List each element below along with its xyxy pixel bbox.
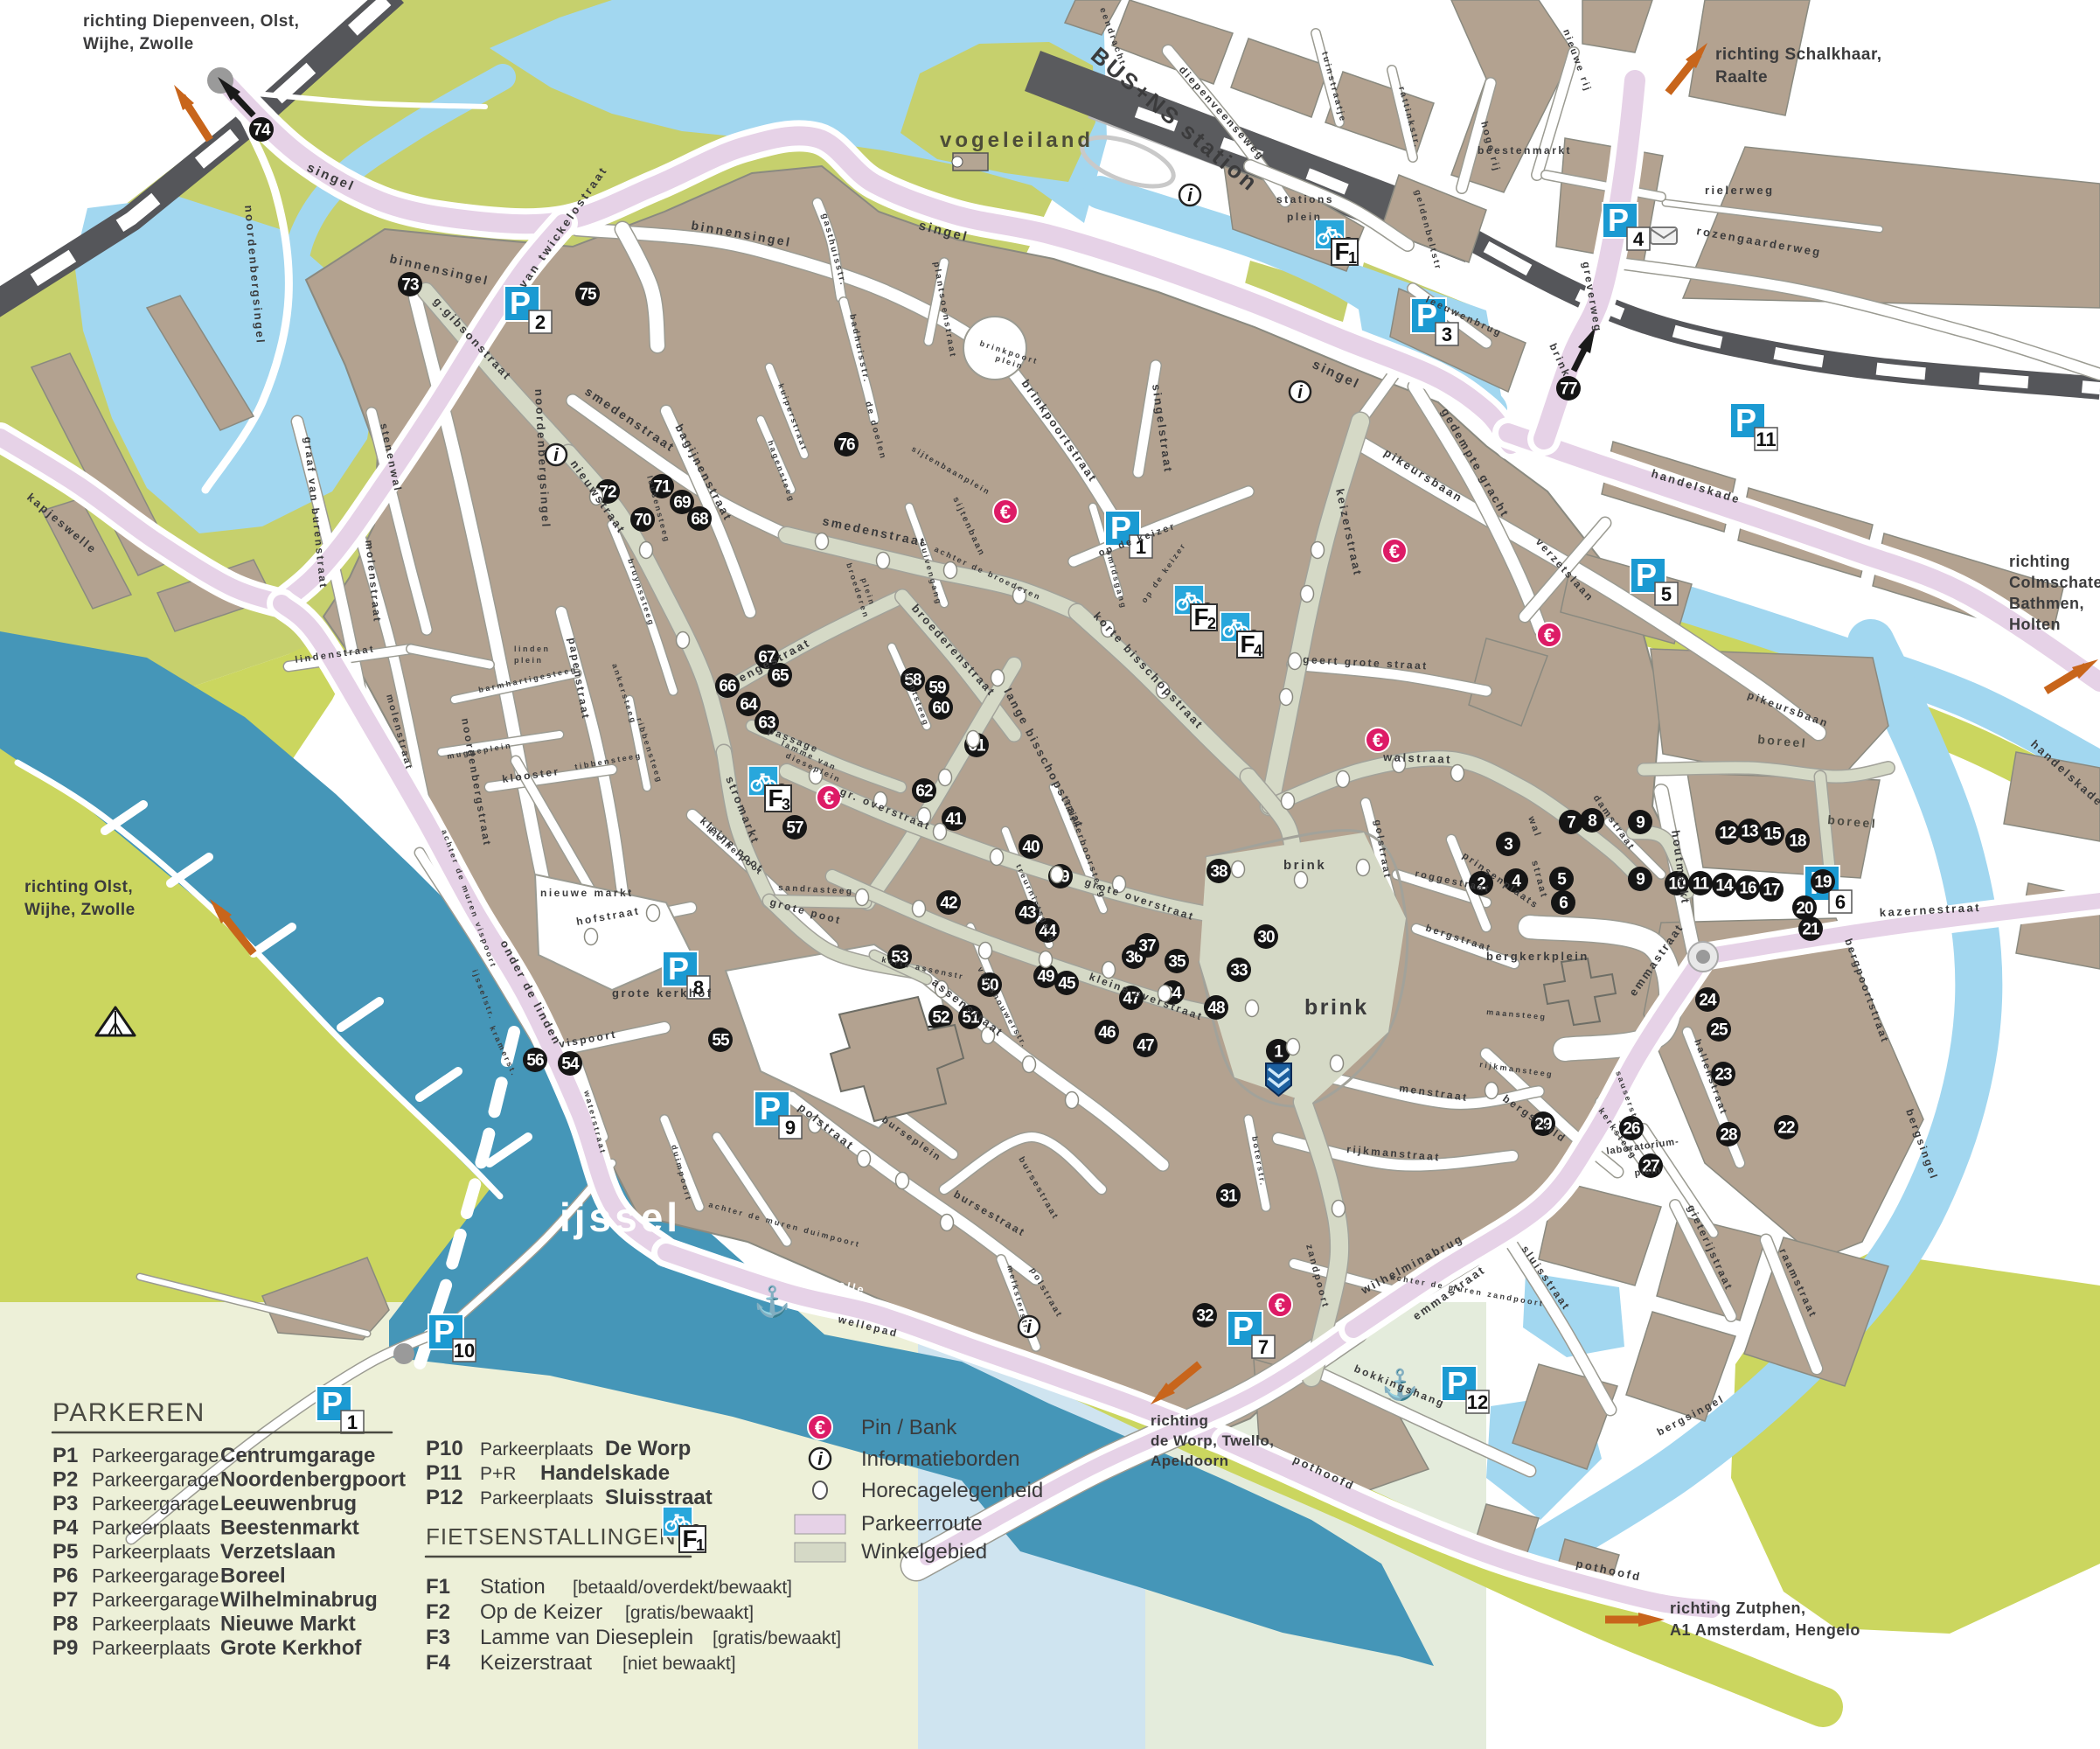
- svg-text:P: P: [1636, 557, 1657, 593]
- svg-text:1: 1: [696, 1536, 705, 1554]
- svg-text:68: 68: [691, 511, 708, 529]
- svg-text:P7: P7: [52, 1588, 78, 1612]
- svg-text:1: 1: [1274, 1043, 1283, 1062]
- svg-text:P: P: [1608, 202, 1629, 238]
- svg-text:F4: F4: [426, 1651, 451, 1675]
- svg-text:€: €: [815, 1417, 825, 1439]
- svg-text:P: P: [1233, 1310, 1254, 1346]
- svg-text:41: 41: [945, 811, 963, 829]
- svg-text:PARKEREN: PARKEREN: [52, 1398, 205, 1427]
- svg-text:€: €: [1000, 501, 1011, 523]
- svg-text:10: 10: [454, 1340, 475, 1362]
- svg-text:F: F: [1193, 603, 1208, 631]
- svg-text:Parkeerplaats: Parkeerplaats: [92, 1613, 211, 1635]
- svg-text:P9: P9: [52, 1636, 78, 1660]
- svg-text:i: i: [1297, 383, 1303, 402]
- svg-text:€: €: [824, 787, 834, 809]
- svg-text:[betaald/overdekt/bewaakt]: [betaald/overdekt/bewaakt]: [573, 1578, 792, 1598]
- svg-text:FIETSENSTALLINGEN: FIETSENSTALLINGEN: [426, 1523, 677, 1550]
- svg-text:P: P: [760, 1091, 781, 1126]
- svg-text:57: 57: [786, 819, 803, 838]
- svg-text:55: 55: [712, 1032, 730, 1050]
- svg-text:24: 24: [1699, 992, 1717, 1010]
- svg-text:Horecagelegenheid: Horecagelegenheid: [861, 1479, 1043, 1502]
- svg-text:richting: richting: [1151, 1412, 1208, 1429]
- svg-text:Informatieborden: Informatieborden: [861, 1447, 1019, 1471]
- svg-text:Pin / Bank: Pin / Bank: [861, 1416, 957, 1439]
- svg-text:P+R: P+R: [480, 1464, 516, 1484]
- svg-text:45: 45: [1058, 975, 1076, 993]
- svg-text:Keizerstraat: Keizerstraat: [480, 1651, 592, 1675]
- svg-text:P5: P5: [52, 1540, 78, 1564]
- svg-text:€: €: [1275, 1294, 1285, 1316]
- svg-text:richting Zutphen,: richting Zutphen,: [1670, 1599, 1805, 1617]
- svg-text:P4: P4: [52, 1516, 79, 1540]
- svg-text:[gratis/bewaakt]: [gratis/bewaakt]: [625, 1603, 754, 1623]
- svg-text:Apeldoorn: Apeldoorn: [1151, 1453, 1229, 1469]
- svg-text:9: 9: [785, 1117, 796, 1139]
- svg-text:brink: brink: [1283, 858, 1326, 873]
- svg-text:74: 74: [253, 122, 271, 140]
- svg-text:25: 25: [1710, 1021, 1728, 1040]
- svg-text:plein: plein: [514, 656, 544, 665]
- svg-text:€: €: [1389, 540, 1400, 562]
- svg-text:66: 66: [719, 678, 736, 696]
- svg-text:5: 5: [1661, 583, 1672, 605]
- svg-text:P3: P3: [52, 1492, 78, 1516]
- svg-text:11: 11: [1693, 875, 1710, 894]
- svg-text:P6: P6: [52, 1564, 78, 1588]
- svg-text:18: 18: [1789, 833, 1806, 851]
- svg-text:Station: Station: [480, 1575, 546, 1599]
- svg-text:Boreel: Boreel: [220, 1564, 286, 1588]
- svg-text:Winkelgebied: Winkelgebied: [861, 1540, 987, 1564]
- svg-text:i: i: [817, 1450, 823, 1469]
- svg-text:Verzetslaan: Verzetslaan: [220, 1540, 336, 1564]
- svg-text:Beestenmarkt: Beestenmarkt: [220, 1516, 359, 1540]
- svg-text:3: 3: [1442, 324, 1452, 345]
- svg-text:P: P: [322, 1385, 343, 1421]
- svg-text:59: 59: [928, 679, 946, 698]
- svg-text:Holten: Holten: [2009, 616, 2061, 633]
- svg-text:75: 75: [579, 286, 597, 304]
- svg-text:21: 21: [1802, 921, 1820, 939]
- svg-text:22: 22: [1777, 1119, 1795, 1138]
- svg-text:Parkeerplaats: Parkeerplaats: [480, 1439, 594, 1460]
- svg-text:16: 16: [1739, 880, 1756, 898]
- svg-text:70: 70: [634, 512, 651, 530]
- svg-text:12: 12: [1467, 1391, 1488, 1413]
- svg-text:2: 2: [1207, 615, 1216, 632]
- svg-text:64: 64: [740, 696, 758, 714]
- svg-text:19: 19: [1814, 874, 1832, 892]
- svg-text:Sluisstraat: Sluisstraat: [605, 1486, 713, 1509]
- svg-text:stations: stations: [1276, 193, 1334, 206]
- svg-text:77: 77: [1560, 380, 1577, 399]
- svg-text:56: 56: [526, 1052, 544, 1070]
- svg-text:14: 14: [1715, 877, 1734, 895]
- svg-text:P11: P11: [426, 1461, 462, 1485]
- svg-text:Parkeergarage: Parkeergarage: [92, 1469, 219, 1491]
- svg-text:52: 52: [932, 1009, 949, 1028]
- svg-text:Parkeerplaats: Parkeerplaats: [92, 1637, 211, 1659]
- svg-text:grote kerkhof: grote kerkhof: [612, 986, 713, 1000]
- svg-text:3: 3: [782, 796, 790, 813]
- svg-text:linden: linden: [514, 645, 551, 653]
- svg-text:Wijhe, Zwolle: Wijhe, Zwolle: [83, 35, 194, 53]
- svg-text:de Worp, Twello,: de Worp, Twello,: [1151, 1432, 1275, 1449]
- svg-text:€: €: [1373, 729, 1383, 751]
- svg-text:1: 1: [347, 1411, 358, 1433]
- svg-text:P: P: [434, 1313, 455, 1349]
- svg-text:F: F: [1240, 631, 1255, 658]
- svg-text:Parkeergarage: Parkeergarage: [92, 1493, 219, 1515]
- svg-text:Wilhelminabrug: Wilhelminabrug: [220, 1588, 378, 1612]
- svg-text:richting Diepenveen, Olst,: richting Diepenveen, Olst,: [83, 12, 299, 31]
- svg-text:plein: plein: [1287, 211, 1323, 223]
- svg-text:Parkeerplaats: Parkeerplaats: [92, 1541, 211, 1563]
- svg-text:8: 8: [1588, 812, 1596, 831]
- svg-text:Leeuwenbrug: Leeuwenbrug: [220, 1492, 357, 1516]
- svg-text:walstraat: walstraat: [1382, 750, 1452, 766]
- svg-text:Colmschate,: Colmschate,: [2009, 574, 2100, 591]
- svg-text:P12: P12: [426, 1486, 463, 1509]
- svg-text:[niet bewaakt]: [niet bewaakt]: [622, 1654, 736, 1674]
- svg-text:F1: F1: [426, 1575, 450, 1599]
- svg-text:13: 13: [1741, 823, 1758, 841]
- svg-text:4: 4: [1254, 642, 1262, 659]
- svg-text:49: 49: [1037, 968, 1054, 986]
- svg-text:bergkerkplein: bergkerkplein: [1486, 950, 1589, 963]
- svg-text:32: 32: [1196, 1307, 1213, 1326]
- svg-text:Centrumgarage: Centrumgarage: [220, 1444, 375, 1467]
- svg-text:Parkeergarage: Parkeergarage: [92, 1589, 219, 1611]
- svg-text:46: 46: [1098, 1024, 1116, 1042]
- svg-text:35: 35: [1168, 953, 1186, 972]
- svg-text:richting: richting: [2009, 553, 2070, 570]
- svg-text:7: 7: [1258, 1336, 1269, 1358]
- svg-text:nieuwe markt: nieuwe markt: [540, 887, 634, 899]
- svg-text:76: 76: [838, 436, 855, 455]
- svg-text:richting Schalkhaar,: richting Schalkhaar,: [1715, 45, 1882, 64]
- svg-text:Raalte: Raalte: [1715, 68, 1768, 87]
- svg-text:48: 48: [1207, 1000, 1225, 1018]
- svg-text:Parkeergarage: Parkeergarage: [92, 1445, 219, 1467]
- svg-text:3: 3: [1504, 836, 1512, 854]
- svg-text:12: 12: [1719, 825, 1736, 843]
- svg-text:2: 2: [535, 311, 546, 333]
- svg-text:Parkeergarage: Parkeergarage: [92, 1565, 219, 1587]
- svg-text:brink: brink: [1304, 995, 1369, 1020]
- svg-text:P: P: [1735, 402, 1756, 438]
- svg-text:De Worp: De Worp: [605, 1437, 691, 1460]
- svg-text:P2: P2: [52, 1468, 78, 1492]
- svg-text:Bathmen,: Bathmen,: [2009, 595, 2084, 612]
- svg-text:P10: P10: [426, 1437, 463, 1460]
- svg-text:Grote Kerkhof: Grote Kerkhof: [220, 1636, 362, 1660]
- svg-text:P: P: [1447, 1365, 1468, 1401]
- svg-text:P1: P1: [52, 1444, 78, 1467]
- svg-text:31: 31: [1220, 1188, 1238, 1206]
- svg-text:Parkeerroute: Parkeerroute: [861, 1512, 983, 1536]
- svg-text:ijssel: ijssel: [560, 1195, 681, 1240]
- svg-text:33: 33: [1230, 962, 1248, 980]
- svg-text:vogeleiland: vogeleiland: [940, 129, 1094, 152]
- svg-text:62: 62: [915, 783, 933, 801]
- svg-text:Noordenbergpoort: Noordenbergpoort: [220, 1468, 406, 1492]
- svg-text:60: 60: [932, 700, 949, 718]
- svg-text:P8: P8: [52, 1613, 78, 1636]
- svg-text:11: 11: [1756, 429, 1776, 450]
- svg-text:54: 54: [561, 1056, 580, 1074]
- svg-text:9: 9: [1636, 871, 1645, 889]
- svg-text:Lamme van Dieseplein: Lamme van Dieseplein: [480, 1626, 693, 1649]
- svg-text:38: 38: [1210, 863, 1227, 881]
- svg-text:F: F: [682, 1525, 697, 1552]
- svg-text:42: 42: [940, 895, 957, 913]
- svg-text:47: 47: [1137, 1037, 1154, 1056]
- svg-text:4: 4: [1633, 228, 1645, 250]
- svg-text:F3: F3: [426, 1626, 450, 1649]
- svg-text:F2: F2: [426, 1600, 450, 1624]
- svg-text:i: i: [1187, 186, 1193, 206]
- svg-text:5: 5: [1557, 871, 1567, 889]
- svg-text:9: 9: [1636, 814, 1645, 833]
- svg-text:F: F: [1334, 238, 1349, 265]
- svg-text:Handelskade: Handelskade: [540, 1461, 670, 1485]
- svg-text:30: 30: [1257, 929, 1275, 947]
- svg-text:Parkeerplaats: Parkeerplaats: [92, 1517, 211, 1539]
- svg-text:73: 73: [401, 276, 419, 295]
- svg-text:richting Olst,: richting Olst,: [24, 878, 133, 896]
- svg-text:[gratis/bewaakt]: [gratis/bewaakt]: [713, 1628, 841, 1648]
- svg-text:65: 65: [771, 667, 789, 686]
- svg-text:P: P: [668, 951, 689, 986]
- svg-text:i: i: [553, 446, 559, 465]
- svg-text:28: 28: [1720, 1126, 1737, 1145]
- svg-text:6: 6: [1835, 891, 1846, 913]
- svg-text:37: 37: [1138, 937, 1156, 956]
- svg-text:7: 7: [1567, 814, 1575, 833]
- svg-text:P: P: [510, 285, 531, 321]
- svg-text:40: 40: [1022, 839, 1040, 857]
- svg-text:Parkeerplaats: Parkeerplaats: [480, 1488, 594, 1509]
- svg-text:17: 17: [1763, 881, 1780, 900]
- svg-text:1: 1: [1348, 249, 1357, 267]
- svg-text:Wijhe, Zwolle: Wijhe, Zwolle: [24, 901, 136, 919]
- svg-text:⚓: ⚓: [754, 1285, 790, 1319]
- svg-text:rielerweg: rielerweg: [1705, 184, 1775, 197]
- svg-text:6: 6: [1559, 895, 1568, 913]
- svg-text:€: €: [1544, 624, 1554, 646]
- svg-text:20: 20: [1796, 900, 1813, 918]
- svg-text:A1 Amsterdam, Hengelo: A1 Amsterdam, Hengelo: [1670, 1621, 1860, 1639]
- svg-text:F: F: [768, 784, 782, 812]
- svg-text:Op de Keizer: Op de Keizer: [480, 1600, 602, 1624]
- svg-text:Nieuwe Markt: Nieuwe Markt: [220, 1613, 356, 1636]
- svg-text:15: 15: [1763, 826, 1782, 844]
- svg-text:69: 69: [673, 494, 691, 512]
